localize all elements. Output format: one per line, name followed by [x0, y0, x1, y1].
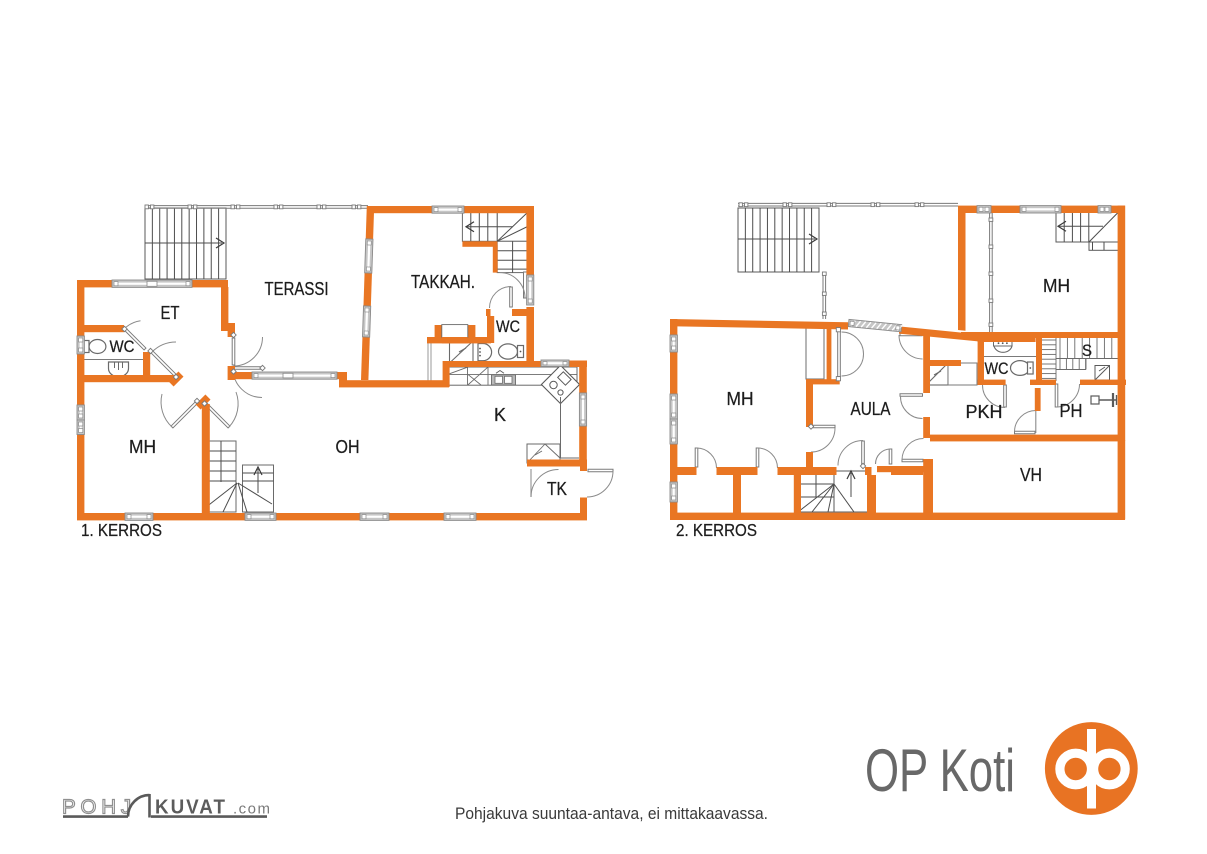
svg-text:.com: .com [233, 801, 272, 818]
svg-text:TERASSI: TERASSI [265, 279, 329, 299]
svg-text:WC: WC [110, 338, 135, 356]
svg-text:VH: VH [1020, 465, 1042, 485]
svg-text:TK: TK [547, 479, 567, 499]
svg-text:PKH: PKH [966, 402, 1003, 422]
svg-text:OH: OH [336, 437, 360, 457]
svg-text:2. KERROS: 2. KERROS [676, 520, 757, 540]
svg-text:KUVAT: KUVAT [155, 796, 227, 819]
svg-text:WC: WC [985, 360, 1009, 378]
svg-text:Pohjakuva suuntaa-antava, ei m: Pohjakuva suuntaa-antava, ei mittakaavas… [455, 804, 768, 823]
svg-text:PH: PH [1060, 401, 1083, 421]
svg-text:MH: MH [727, 389, 754, 409]
svg-text:TAKKAH.: TAKKAH. [411, 272, 475, 292]
svg-text:MH: MH [1043, 276, 1070, 296]
svg-text:MH: MH [129, 437, 156, 457]
svg-text:ET: ET [161, 303, 180, 323]
svg-text:POHJ: POHJ [62, 796, 136, 819]
svg-text:K: K [494, 405, 506, 425]
svg-text:S: S [1082, 341, 1092, 360]
svg-text:WC: WC [496, 318, 520, 336]
svg-text:OP Koti: OP Koti [865, 737, 1015, 804]
svg-text:1. KERROS: 1. KERROS [81, 520, 162, 540]
svg-text:AULA: AULA [851, 399, 891, 419]
